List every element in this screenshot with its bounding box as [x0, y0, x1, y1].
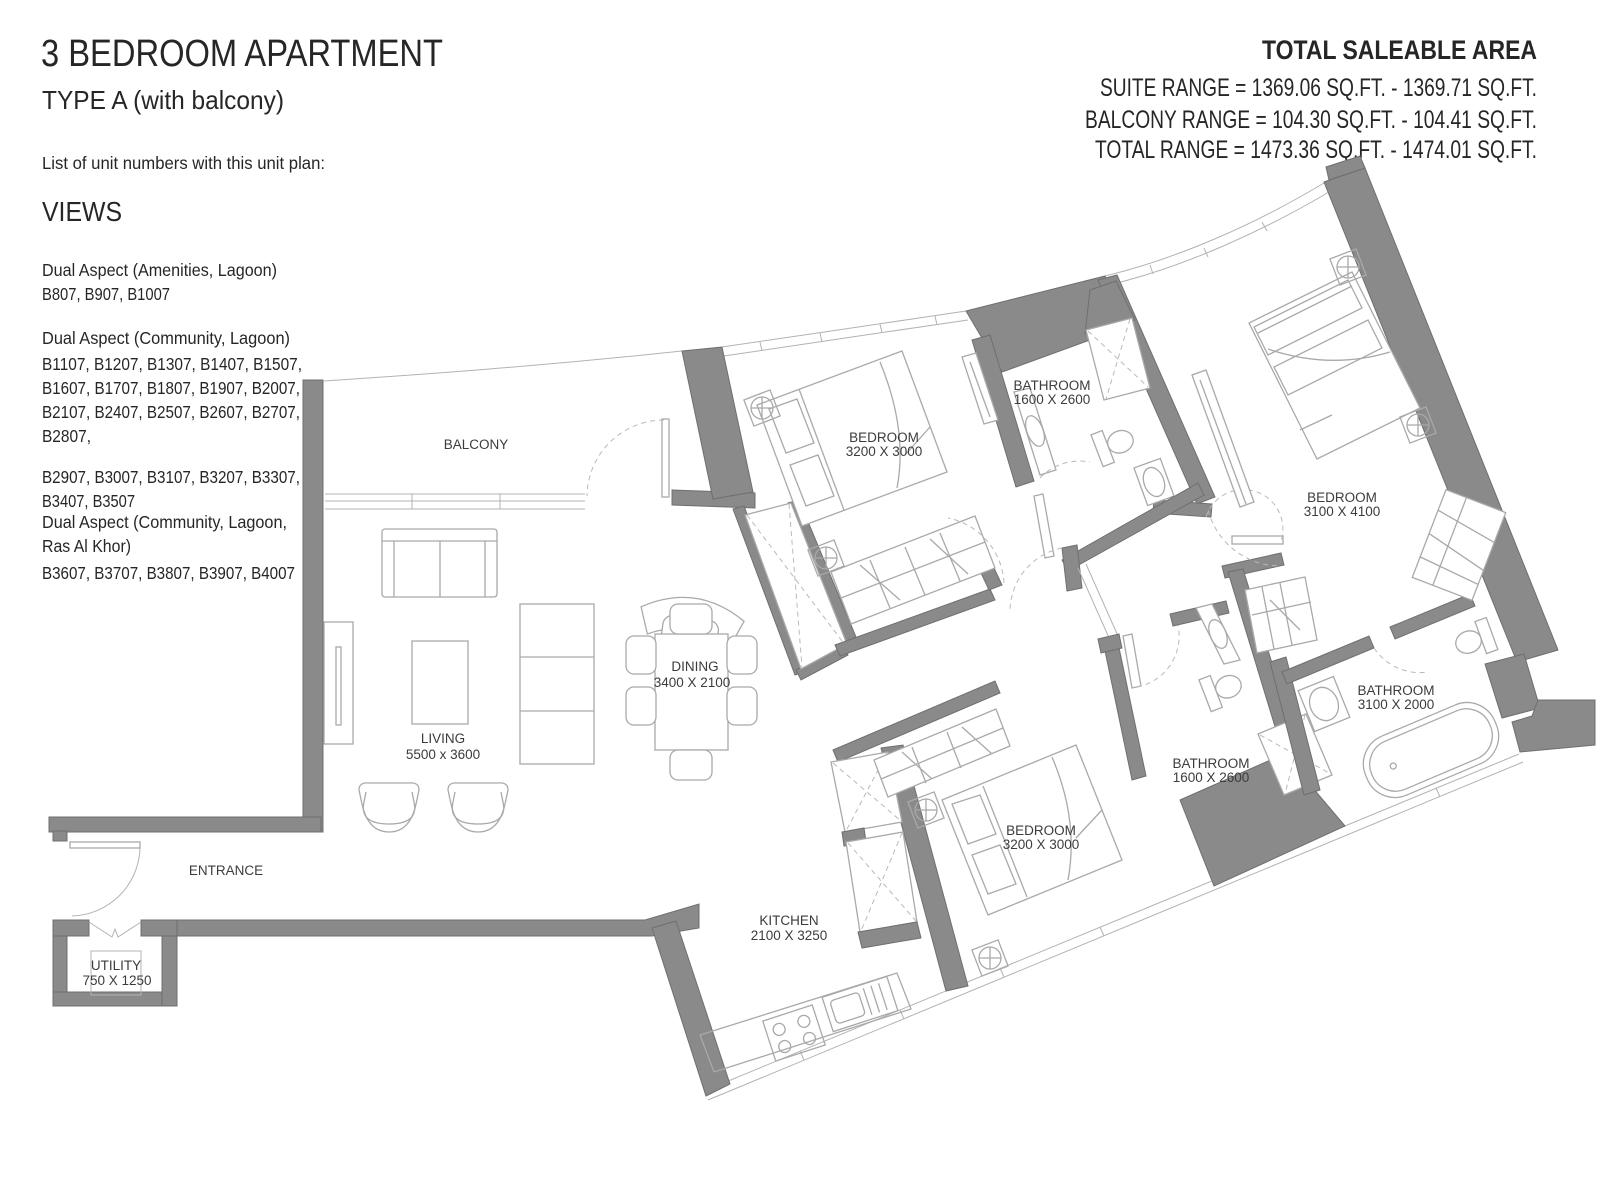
svg-text:BATHROOM: BATHROOM: [1358, 683, 1435, 698]
svg-text:KITCHEN: KITCHEN: [759, 913, 818, 928]
svg-text:3200 X 3000: 3200 X 3000: [1003, 837, 1080, 852]
svg-text:1600 X 2600: 1600 X 2600: [1173, 770, 1250, 785]
svg-text:2100 X 3250: 2100 X 3250: [751, 928, 828, 943]
svg-text:BEDROOM: BEDROOM: [1006, 823, 1076, 838]
svg-text:B2907, B3007, B3107, B3207, B3: B2907, B3007, B3107, B3207, B3307,: [42, 467, 300, 487]
svg-text:BEDROOM: BEDROOM: [849, 430, 919, 445]
svg-text:VIEWS: VIEWS: [42, 196, 122, 227]
svg-text:BALCONY RANGE = 104.30 SQ.FT.: BALCONY RANGE = 104.30 SQ.FT. - 104.41 S…: [1085, 106, 1537, 134]
svg-text:B2807,: B2807,: [42, 426, 91, 446]
svg-text:B3607, B3707, B3807, B3907, B4: B3607, B3707, B3807, B3907, B4007: [42, 563, 295, 583]
svg-text:SUITE RANGE = 1369.06 SQ.FT. -: SUITE RANGE = 1369.06 SQ.FT. - 1369.71 S…: [1100, 74, 1537, 102]
svg-text:B1107, B1207, B1307, B1407, B1: B1107, B1207, B1307, B1407, B1507,: [42, 354, 302, 374]
svg-text:3200 X 3000: 3200 X 3000: [846, 444, 923, 459]
svg-text:750 X 1250: 750 X 1250: [82, 973, 151, 988]
svg-text:3100 X 4100: 3100 X 4100: [1304, 504, 1381, 519]
svg-text:DINING: DINING: [671, 659, 718, 674]
svg-text:B1607, B1707, B1807, B1907, B2: B1607, B1707, B1807, B1907, B2007,: [42, 378, 300, 398]
svg-text:1600 X 2600: 1600 X 2600: [1014, 392, 1091, 407]
svg-text:3400 X 2100: 3400 X 2100: [654, 675, 731, 690]
svg-text:ENTRANCE: ENTRANCE: [189, 863, 263, 878]
svg-text:UTILITY: UTILITY: [91, 958, 141, 973]
svg-text:TOTAL RANGE = 1473.36 SQ.FT. -: TOTAL RANGE = 1473.36 SQ.FT. - 1474.01 S…: [1095, 136, 1537, 164]
svg-text:5500 x 3600: 5500 x 3600: [406, 747, 480, 762]
svg-text:3 BEDROOM APARTMENT: 3 BEDROOM APARTMENT: [41, 33, 443, 75]
svg-text:Dual Aspect (Community, Lagoon: Dual Aspect (Community, Lagoon): [42, 328, 290, 348]
svg-text:BEDROOM: BEDROOM: [1307, 490, 1377, 505]
svg-text:3100 X 2000: 3100 X 2000: [1358, 697, 1435, 712]
svg-text:B3407, B3507: B3407, B3507: [42, 491, 135, 511]
svg-text:TOTAL SALEABLE AREA: TOTAL SALEABLE AREA: [1262, 35, 1537, 65]
svg-text:LIVING: LIVING: [421, 731, 465, 746]
svg-text:BATHROOM: BATHROOM: [1173, 756, 1250, 771]
svg-text:BATHROOM: BATHROOM: [1014, 378, 1091, 393]
svg-text:Dual Aspect (Amenities, Lagoon: Dual Aspect (Amenities, Lagoon): [42, 260, 277, 280]
svg-text:TYPE A (with balcony): TYPE A (with balcony): [42, 85, 284, 115]
svg-text:Ras Al Khor): Ras Al Khor): [42, 536, 131, 556]
svg-text:B807, B907, B1007: B807, B907, B1007: [42, 284, 170, 304]
svg-text:BALCONY: BALCONY: [444, 437, 509, 452]
svg-text:B2107, B2407, B2507, B2607, B2: B2107, B2407, B2507, B2607, B2707,: [42, 402, 300, 422]
svg-text:List of unit numbers with this: List of unit numbers with this unit plan…: [42, 153, 325, 173]
svg-text:Dual Aspect (Community, Lagoon: Dual Aspect (Community, Lagoon,: [42, 512, 287, 532]
